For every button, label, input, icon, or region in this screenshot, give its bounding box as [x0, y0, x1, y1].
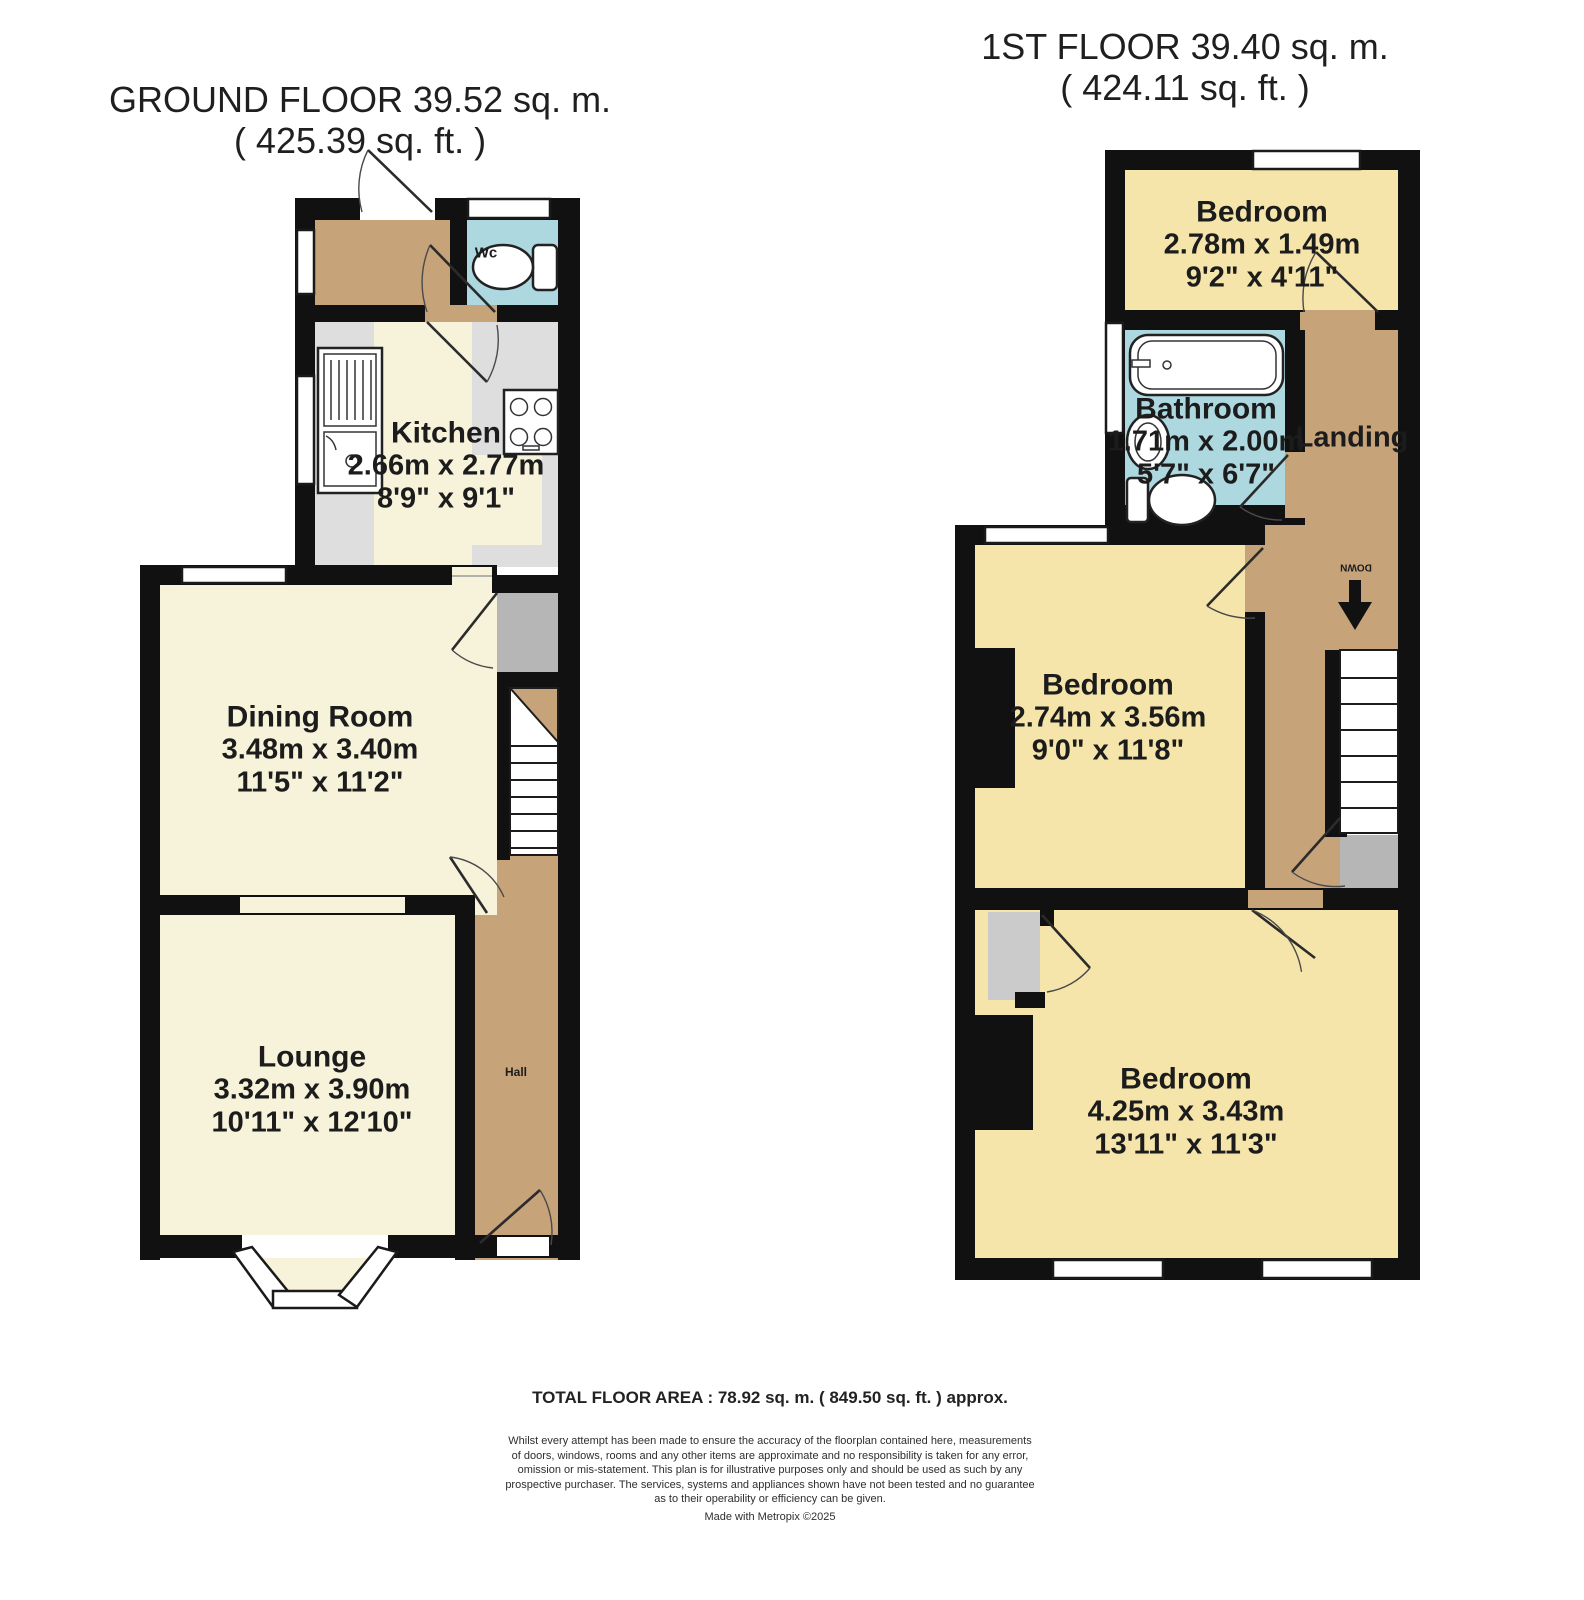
room-dim-metric: 4.25m x 3.43m — [1088, 1096, 1285, 1129]
landing-label: Landing — [1296, 422, 1409, 455]
room-name: Bedroom — [1088, 1063, 1285, 1096]
bedroom3-label: Bedroom 4.25m x 3.43m 13'11" x 11'3" — [1088, 1063, 1285, 1162]
dining-room-label: Dining Room 3.48m x 3.40m 11'5" x 11'2" — [222, 701, 419, 800]
disclaimer: Whilst every attempt has been made to en… — [505, 1434, 1035, 1524]
room-dim-imperial: 5'7" x 6'7" — [1108, 459, 1305, 492]
window — [297, 376, 314, 484]
window — [1053, 1260, 1163, 1278]
room-dim-imperial: 11'5" x 11'2" — [222, 767, 419, 800]
room-dim-imperial: 9'2" x 4'11" — [1164, 262, 1361, 295]
bedroom2-label: Bedroom 2.74m x 3.56m 9'0" x 11'8" — [1010, 669, 1207, 768]
room-name: Kitchen — [348, 417, 545, 450]
room-dim-metric: 3.32m x 3.90m — [212, 1074, 413, 1107]
room-name: Bedroom — [1164, 196, 1361, 229]
metropix-credit: Made with Metropix ©2025 — [505, 1510, 1035, 1525]
wc-label: Wc — [475, 245, 498, 262]
window — [985, 527, 1108, 543]
window — [297, 230, 314, 294]
room-dim-metric: 3.48m x 3.40m — [222, 734, 419, 767]
room-name: Dining Room — [222, 701, 419, 734]
room-dim-imperial: 13'11" x 11'3" — [1088, 1129, 1285, 1162]
window — [182, 567, 286, 583]
first-floor-subtitle: ( 424.11 sq. ft. ) — [981, 67, 1389, 108]
room-dim-metric: 2.78m x 1.49m — [1164, 229, 1361, 262]
lounge-label: Lounge 3.32m x 3.90m 10'11" x 12'10" — [212, 1041, 413, 1140]
window — [468, 199, 550, 218]
window — [1262, 1260, 1372, 1278]
room-dim-metric: 2.66m x 2.77m — [348, 450, 545, 483]
floorplan-canvas: GROUND FLOOR 39.52 sq. m. ( 425.39 sq. f… — [0, 0, 1584, 1600]
bathtub-icon — [1130, 335, 1283, 395]
room-dim-metric: 1.71m x 2.00m — [1108, 426, 1305, 459]
first-floor-title: 1ST FLOOR 39.40 sq. m. ( 424.11 sq. ft. … — [981, 26, 1389, 108]
room-dim-metric: 2.74m x 3.56m — [1010, 702, 1207, 735]
room-name: Bathroom — [1108, 393, 1305, 426]
kitchen-label: Kitchen 2.66m x 2.77m 8'9" x 9'1" — [348, 417, 545, 516]
room-name: Lounge — [212, 1041, 413, 1074]
ground-floor-title-line: GROUND FLOOR 39.52 sq. m. — [109, 79, 611, 120]
first-floor-title-line: 1ST FLOOR 39.40 sq. m. — [981, 26, 1389, 67]
total-floor-area: TOTAL FLOOR AREA : 78.92 sq. m. ( 849.50… — [532, 1388, 1008, 1408]
bedroom1-label: Bedroom 2.78m x 1.49m 9'2" x 4'11" — [1164, 196, 1361, 295]
disclaimer-text: Whilst every attempt has been made to en… — [505, 1434, 1035, 1507]
stairs-down-label: DOWN — [1340, 562, 1372, 573]
window — [1253, 151, 1360, 169]
hall-label: Hall — [505, 1065, 527, 1079]
ground-floor-title: GROUND FLOOR 39.52 sq. m. ( 425.39 sq. f… — [109, 79, 611, 161]
ground-staircase — [510, 688, 558, 855]
room-dim-imperial: 10'11" x 12'10" — [212, 1107, 413, 1140]
room-dim-imperial: 8'9" x 9'1" — [348, 483, 545, 516]
ground-floor-subtitle: ( 425.39 sq. ft. ) — [109, 120, 611, 161]
room-name: Bedroom — [1010, 669, 1207, 702]
room-dim-imperial: 9'0" x 11'8" — [1010, 735, 1207, 768]
bathroom-label: Bathroom 1.71m x 2.00m 5'7" x 6'7" — [1108, 393, 1305, 492]
